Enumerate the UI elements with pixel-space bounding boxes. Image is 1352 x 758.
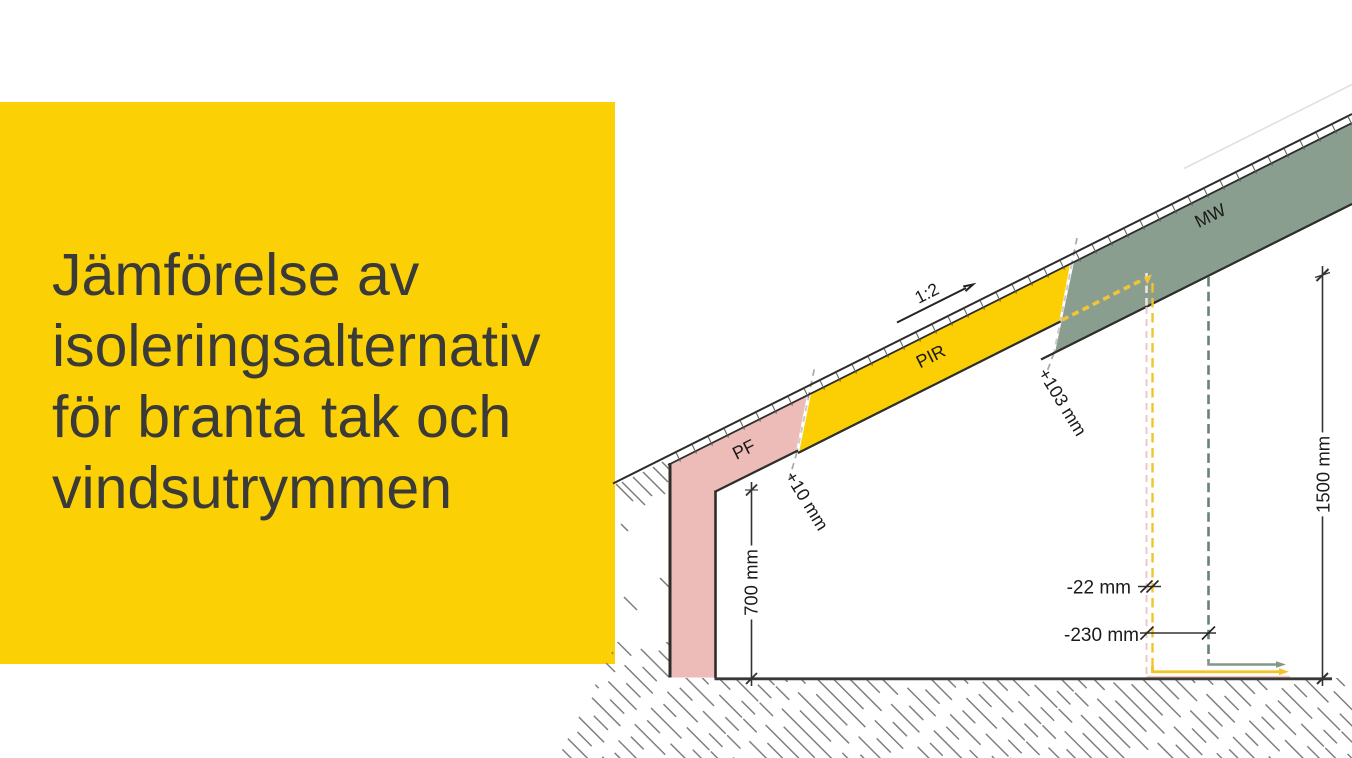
svg-text:-22 mm: -22 mm <box>1067 578 1131 599</box>
svg-text:1500 mm: 1500 mm <box>1313 436 1334 513</box>
svg-text:+103 mm: +103 mm <box>1034 365 1091 440</box>
svg-text:700 mm: 700 mm <box>741 549 762 616</box>
svg-text:-230 mm: -230 mm <box>1064 625 1139 646</box>
svg-text:+10 mm: +10 mm <box>781 468 832 534</box>
